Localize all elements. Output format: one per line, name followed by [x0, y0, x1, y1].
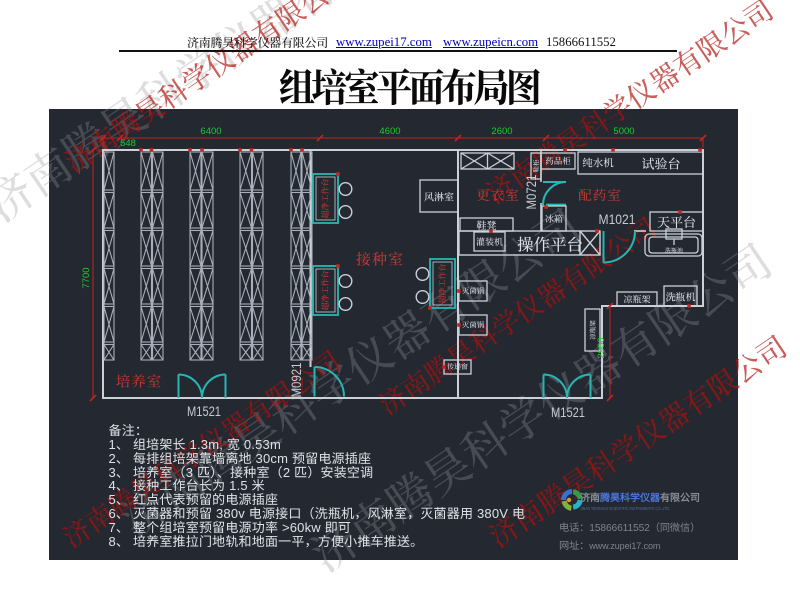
svg-text:548: 548 — [120, 138, 136, 149]
svg-text:洗瓶机: 洗瓶机 — [666, 289, 696, 304]
svg-text:冰箱: 冰箱 — [545, 212, 563, 225]
svg-text:配药室: 配药室 — [578, 184, 622, 204]
svg-text:接种室: 接种室 — [356, 249, 404, 270]
svg-text:更衣室: 更衣室 — [476, 184, 520, 204]
svg-text:灌装机: 灌装机 — [476, 235, 503, 248]
svg-text:M1521: M1521 — [187, 403, 221, 419]
svg-text:试验台: 试验台 — [641, 154, 680, 173]
svg-text:M1521: M1521 — [551, 404, 585, 420]
svg-text:超净工作台: 超净工作台 — [320, 179, 331, 219]
svg-text:M1021: M1021 — [599, 211, 636, 227]
svg-text:超净工作台: 超净工作台 — [437, 264, 448, 304]
svg-text:4600: 4600 — [379, 126, 400, 137]
svg-text:纯水机: 纯水机 — [582, 156, 614, 171]
svg-text:7700: 7700 — [81, 267, 92, 288]
svg-text:培养室: 培养室 — [116, 371, 163, 392]
svg-text:鞋凳: 鞋凳 — [477, 217, 497, 232]
svg-text:天平台: 天平台 — [657, 212, 696, 231]
svg-text:灭菌锅: 灭菌锅 — [462, 286, 485, 297]
svg-text:传递窗: 传递窗 — [447, 362, 468, 372]
svg-text:M0721: M0721 — [523, 174, 539, 209]
svg-text:凉瓶架: 凉瓶架 — [623, 293, 650, 306]
svg-text:5000: 5000 — [613, 126, 634, 137]
svg-text:灭菌锅: 灭菌锅 — [462, 320, 485, 331]
svg-text:操作平台: 操作平台 — [517, 232, 583, 256]
svg-text:M0921: M0921 — [288, 362, 304, 397]
svg-text:6400: 6400 — [200, 126, 221, 137]
svg-text:鞋柜: 鞋柜 — [532, 159, 541, 173]
svg-text:2600: 2600 — [491, 126, 512, 137]
svg-text:2900: 2900 — [596, 337, 607, 358]
svg-text:药品柜: 药品柜 — [545, 155, 571, 167]
svg-text:超净工作台: 超净工作台 — [320, 271, 331, 311]
svg-text:洗瓶池: 洗瓶池 — [665, 246, 683, 255]
svg-text:凉瓶架: 凉瓶架 — [588, 320, 597, 340]
svg-text:风淋室: 风淋室 — [424, 189, 454, 204]
